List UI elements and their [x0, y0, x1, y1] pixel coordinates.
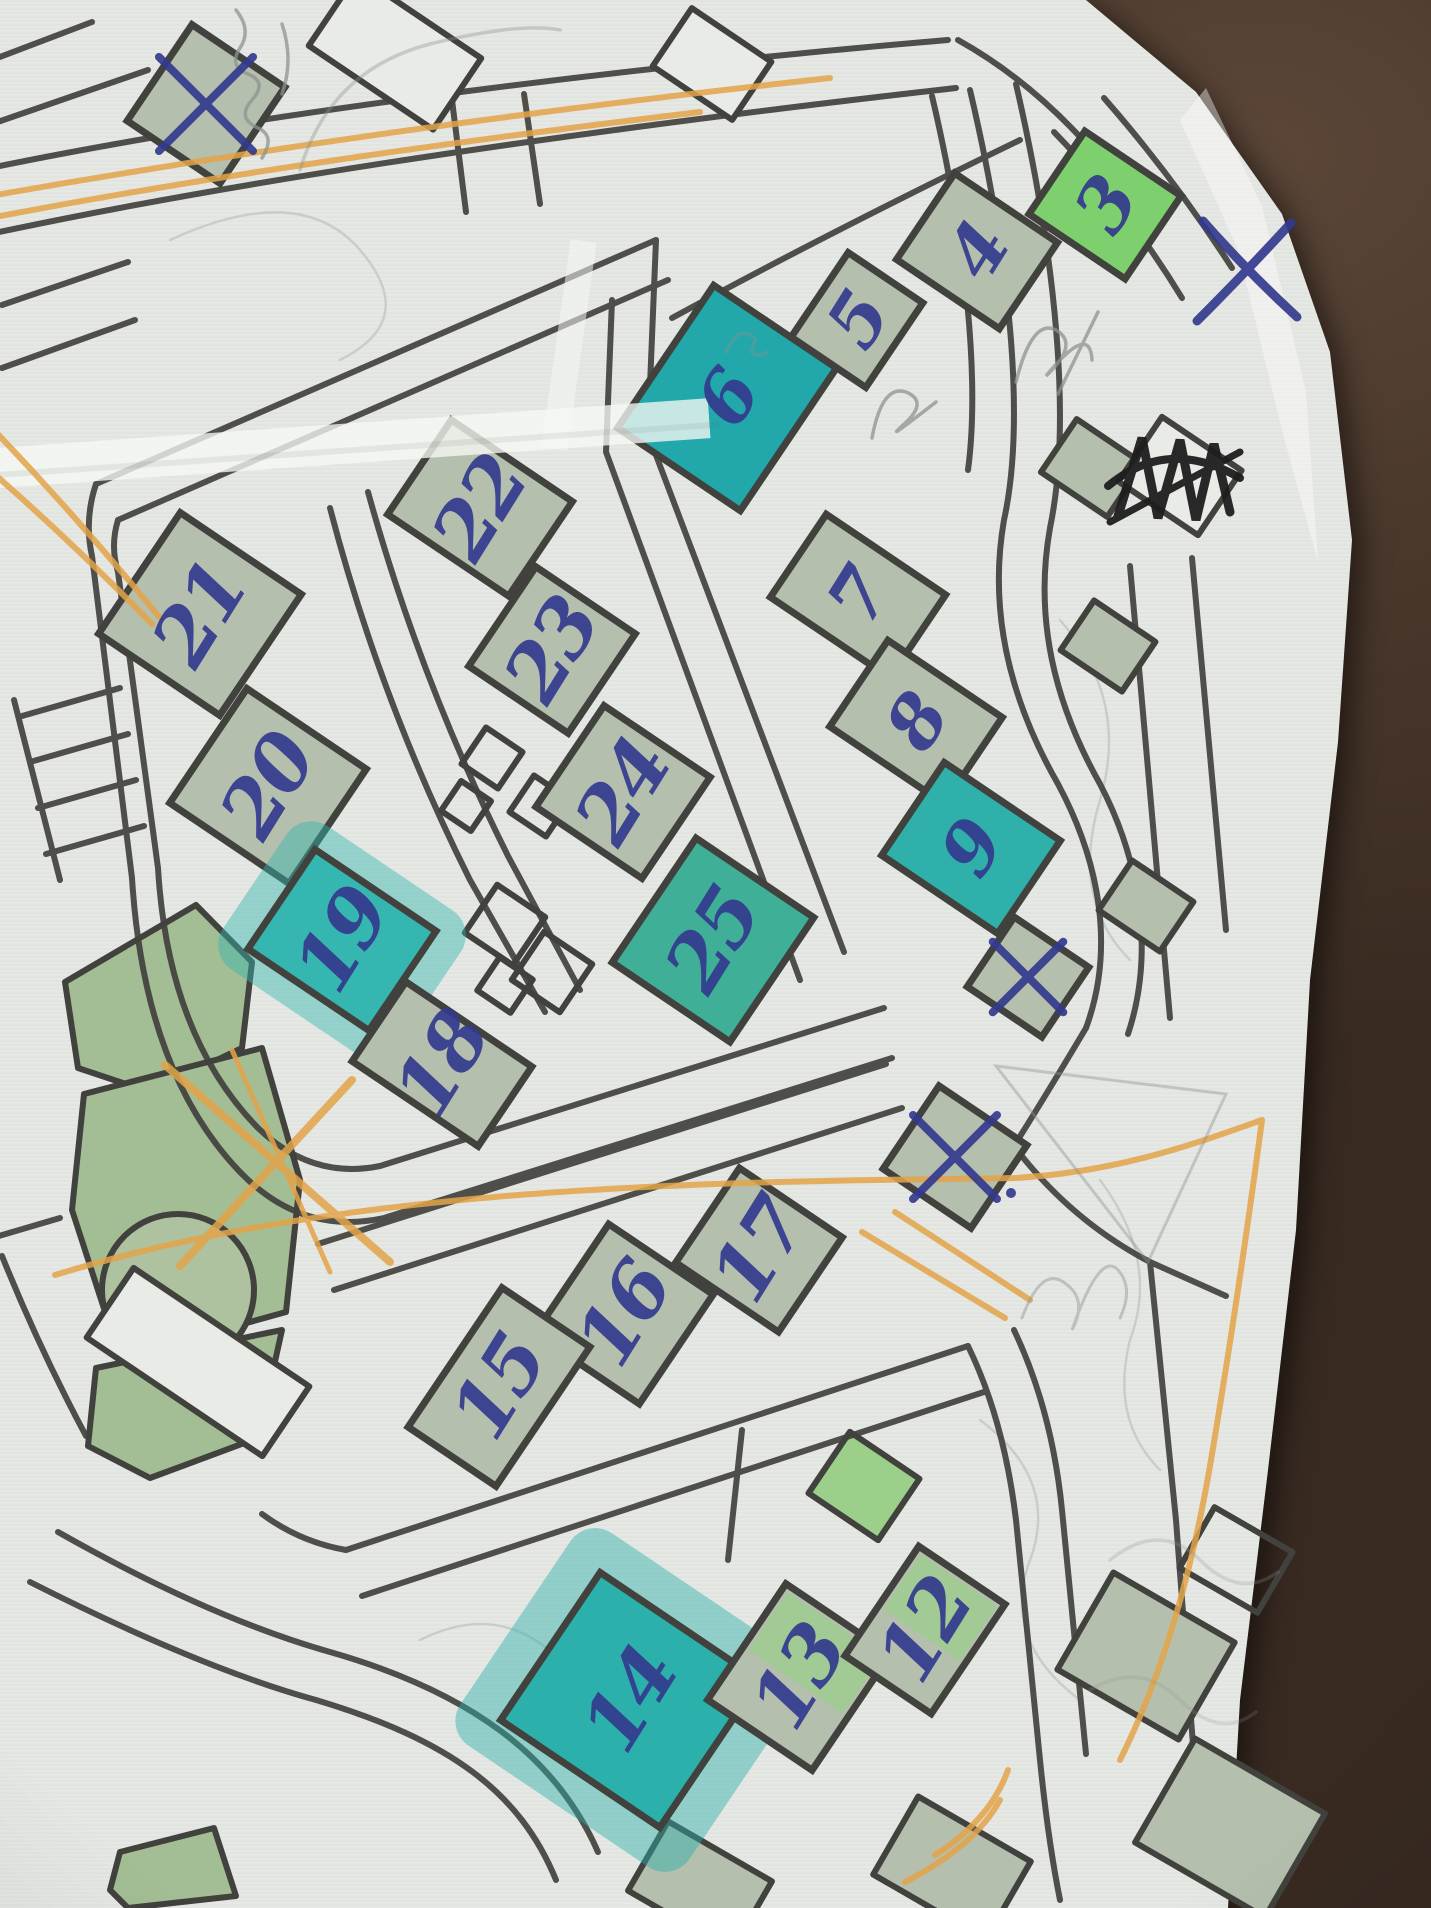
map-scene: 34567892221232024192518171615141312 [0, 0, 1431, 1908]
map-photo: 34567892221232024192518171615141312 [0, 0, 1431, 1908]
